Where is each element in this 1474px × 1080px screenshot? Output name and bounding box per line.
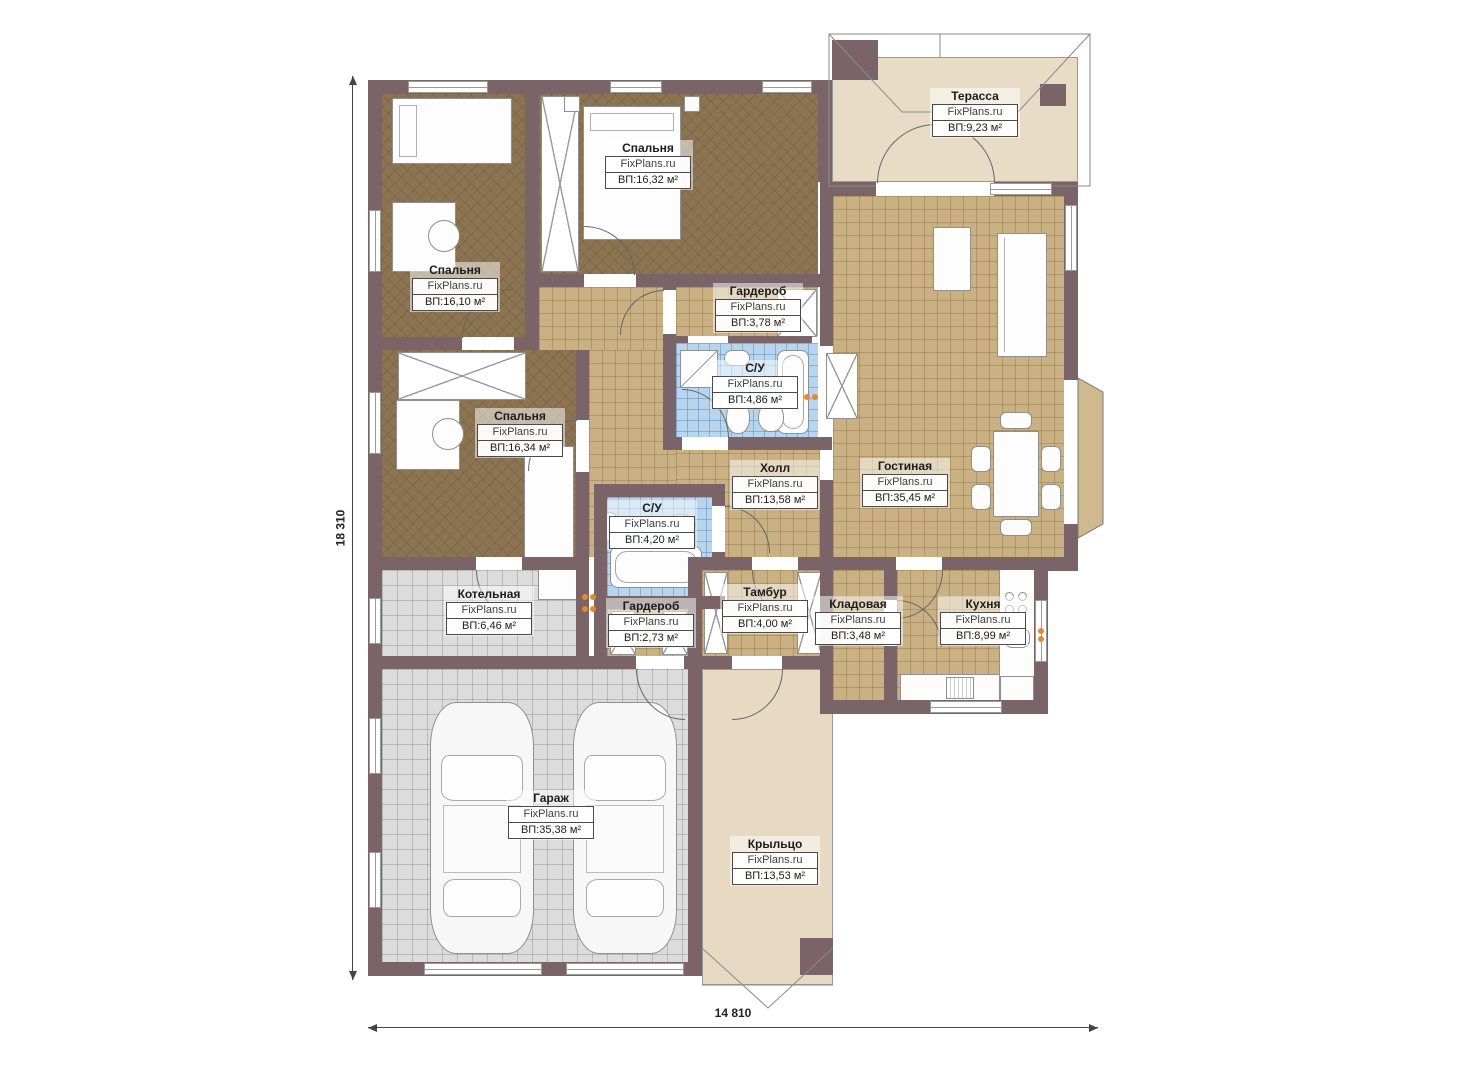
- window: [1065, 205, 1077, 271]
- watermark: FixPlans.ru: [733, 853, 817, 869]
- room-name: С/У: [642, 501, 661, 516]
- window: [610, 81, 662, 93]
- room-name: Котельная: [458, 587, 521, 602]
- room-area: ВП:2,73 м²: [609, 631, 693, 646]
- door-opening: [876, 182, 994, 196]
- sofa: [997, 233, 1047, 357]
- watermark: FixPlans.ru: [941, 613, 1025, 629]
- room-name: Холл: [760, 461, 790, 476]
- door-opening: [576, 420, 589, 472]
- dining-chair: [971, 484, 991, 510]
- wall-segment: [1040, 84, 1066, 106]
- garage-door: [566, 963, 684, 975]
- door-opening: [682, 437, 728, 450]
- room-label-hall: Холл FixPlans.ru ВП:13,58 м²: [730, 460, 820, 510]
- window: [369, 210, 381, 272]
- watermark: FixPlans.ru: [606, 157, 690, 173]
- wall-segment: [832, 40, 878, 80]
- fridge: [1000, 676, 1034, 702]
- door-opening: [584, 274, 636, 287]
- room-name: Спальня: [494, 409, 546, 424]
- closet: [541, 96, 579, 272]
- room-area: ВП:13,58 м²: [733, 493, 817, 508]
- room-label-storage: Кладовая FixPlans.ru ВП:3,48 м²: [813, 596, 903, 646]
- room-label-vestibule: Тамбур FixPlans.ru ВП:4,00 м²: [720, 584, 810, 634]
- watermark: FixPlans.ru: [933, 105, 1017, 121]
- garage-door: [424, 963, 542, 975]
- room-label-wardrobe-top: Гардероб FixPlans.ru ВП:3,78 м²: [713, 283, 803, 333]
- door-opening: [688, 336, 728, 343]
- room-area: ВП:16,10 м²: [413, 295, 497, 310]
- dining-chair: [971, 446, 991, 472]
- watermark: FixPlans.ru: [816, 613, 900, 629]
- wall-segment: [594, 484, 725, 497]
- room-label-boiler: Котельная FixPlans.ru ВП:6,46 м²: [444, 586, 534, 636]
- window: [369, 598, 381, 644]
- window: [762, 81, 812, 93]
- door-opening: [896, 557, 942, 570]
- door-opening: [752, 557, 798, 570]
- nightstand: [564, 96, 580, 112]
- room-name: Терасса: [951, 89, 999, 104]
- room-label-bathroom-lower: С/У FixPlans.ru ВП:4,20 м²: [607, 500, 697, 550]
- wall-segment: [382, 337, 539, 350]
- room-name: Гараж: [533, 791, 569, 806]
- room-area: ВП:4,20 м²: [610, 533, 694, 548]
- room-label-living: Гостиная FixPlans.ru ВП:35,45 м²: [860, 458, 950, 508]
- room-area: ВП:3,78 м²: [716, 316, 800, 331]
- door-opening: [712, 506, 725, 552]
- room-label-wardrobe-lower: Гардероб FixPlans.ru ВП:2,73 м²: [606, 598, 696, 648]
- watermark: FixPlans.ru: [509, 807, 593, 823]
- dishwasher: [946, 677, 974, 699]
- dining-chair: [1000, 519, 1032, 536]
- wall-segment: [818, 94, 832, 182]
- room-name: Спальня: [622, 141, 674, 156]
- room-name: Гардероб: [730, 284, 787, 299]
- room-label-garage: Гараж FixPlans.ru ВП:35,38 м²: [506, 790, 596, 840]
- window: [930, 701, 1002, 713]
- door-opening: [663, 290, 676, 334]
- room-area: ВП:35,45 м²: [863, 491, 947, 506]
- dining-chair: [1041, 484, 1061, 510]
- watermark: FixPlans.ru: [609, 615, 693, 631]
- wall-segment: [820, 196, 833, 346]
- door-opening: [636, 656, 684, 669]
- room-name: Тамбур: [743, 585, 787, 600]
- desk-chair: [428, 220, 460, 252]
- door-opening: [476, 557, 522, 570]
- room-area: ВП:8,99 м²: [941, 629, 1025, 644]
- room-area: ВП:35,38 м²: [509, 823, 593, 838]
- room-area: ВП:6,46 м²: [447, 619, 531, 634]
- watermark: FixPlans.ru: [447, 603, 531, 619]
- dining-table: [993, 431, 1039, 517]
- watermark: FixPlans.ru: [478, 425, 562, 441]
- room-area: ВП:16,34 м²: [478, 441, 562, 456]
- room-name: Кладовая: [829, 597, 886, 612]
- wall-segment: [820, 480, 833, 557]
- room-name: Крыльцо: [748, 837, 803, 852]
- window: [369, 718, 381, 774]
- room-name: Гардероб: [623, 599, 680, 614]
- room-name: С/У: [745, 361, 764, 376]
- room-label-bathroom-top: С/У FixPlans.ru ВП:4,86 м²: [710, 360, 800, 410]
- wall-segment: [576, 350, 589, 669]
- dimension-height-label: 18 310: [333, 510, 347, 547]
- nightstand: [684, 96, 700, 112]
- socket-marker: [582, 594, 596, 600]
- window: [369, 392, 381, 454]
- wall-segment: [800, 938, 833, 975]
- room-label-bedroom-left: Спальня FixPlans.ru ВП:16,10 м²: [410, 262, 500, 312]
- socket-marker: [1038, 628, 1044, 642]
- room-name: Гостиная: [878, 459, 932, 474]
- window: [369, 852, 381, 908]
- watermark: FixPlans.ru: [716, 300, 800, 316]
- watermark: FixPlans.ru: [723, 601, 807, 617]
- room-label-bedroom-lower: Спальня FixPlans.ru ВП:16,34 м²: [475, 408, 565, 458]
- door-opening: [462, 337, 514, 350]
- room-area: ВП:4,00 м²: [723, 617, 807, 632]
- room-label-porch: Крыльцо FixPlans.ru ВП:13,53 м²: [730, 836, 820, 886]
- room-name: Спальня: [429, 263, 481, 278]
- closet: [398, 352, 526, 400]
- desk-chair: [432, 418, 464, 450]
- dining-chair: [1000, 412, 1032, 429]
- dimension-height: 18 310: [346, 76, 358, 980]
- watermark: FixPlans.ru: [713, 377, 797, 393]
- socket-marker: [804, 394, 818, 400]
- room-label-kitchen: Кухня FixPlans.ru ВП:8,99 м²: [938, 596, 1028, 646]
- bay-window: [1078, 378, 1103, 538]
- room-area: ВП:16,32 м²: [606, 173, 690, 188]
- coffee-table: [933, 227, 971, 291]
- room-area: ВП:9,23 м²: [933, 121, 1017, 136]
- dimension-width-label: 14 810: [715, 1006, 752, 1020]
- bed: [392, 98, 512, 164]
- window: [990, 183, 1052, 195]
- floor-plan-canvas: Терасса FixPlans.ru ВП:9,23 м² Спальня F…: [0, 0, 1474, 1080]
- room-label-bedroom-top: Спальня FixPlans.ru ВП:16,32 м²: [603, 140, 693, 190]
- room-area: ВП:3,48 м²: [816, 629, 900, 644]
- door-opening: [732, 656, 782, 669]
- dining-chair: [1041, 446, 1061, 472]
- watermark: FixPlans.ru: [863, 475, 947, 491]
- dimension-width: 14 810: [368, 1020, 1098, 1034]
- window: [408, 81, 488, 93]
- socket-marker: [582, 606, 596, 612]
- room-name: Кухня: [965, 597, 1000, 612]
- watermark: FixPlans.ru: [413, 279, 497, 295]
- fireplace: [826, 353, 858, 419]
- room-area: ВП:13,53 м²: [733, 869, 817, 884]
- room-area: ВП:4,86 м²: [713, 393, 797, 408]
- watermark: FixPlans.ru: [610, 517, 694, 533]
- room-label-terrace: Терасса FixPlans.ru ВП:9,23 м²: [930, 88, 1020, 138]
- watermark: FixPlans.ru: [733, 477, 817, 493]
- wall-segment: [525, 94, 539, 350]
